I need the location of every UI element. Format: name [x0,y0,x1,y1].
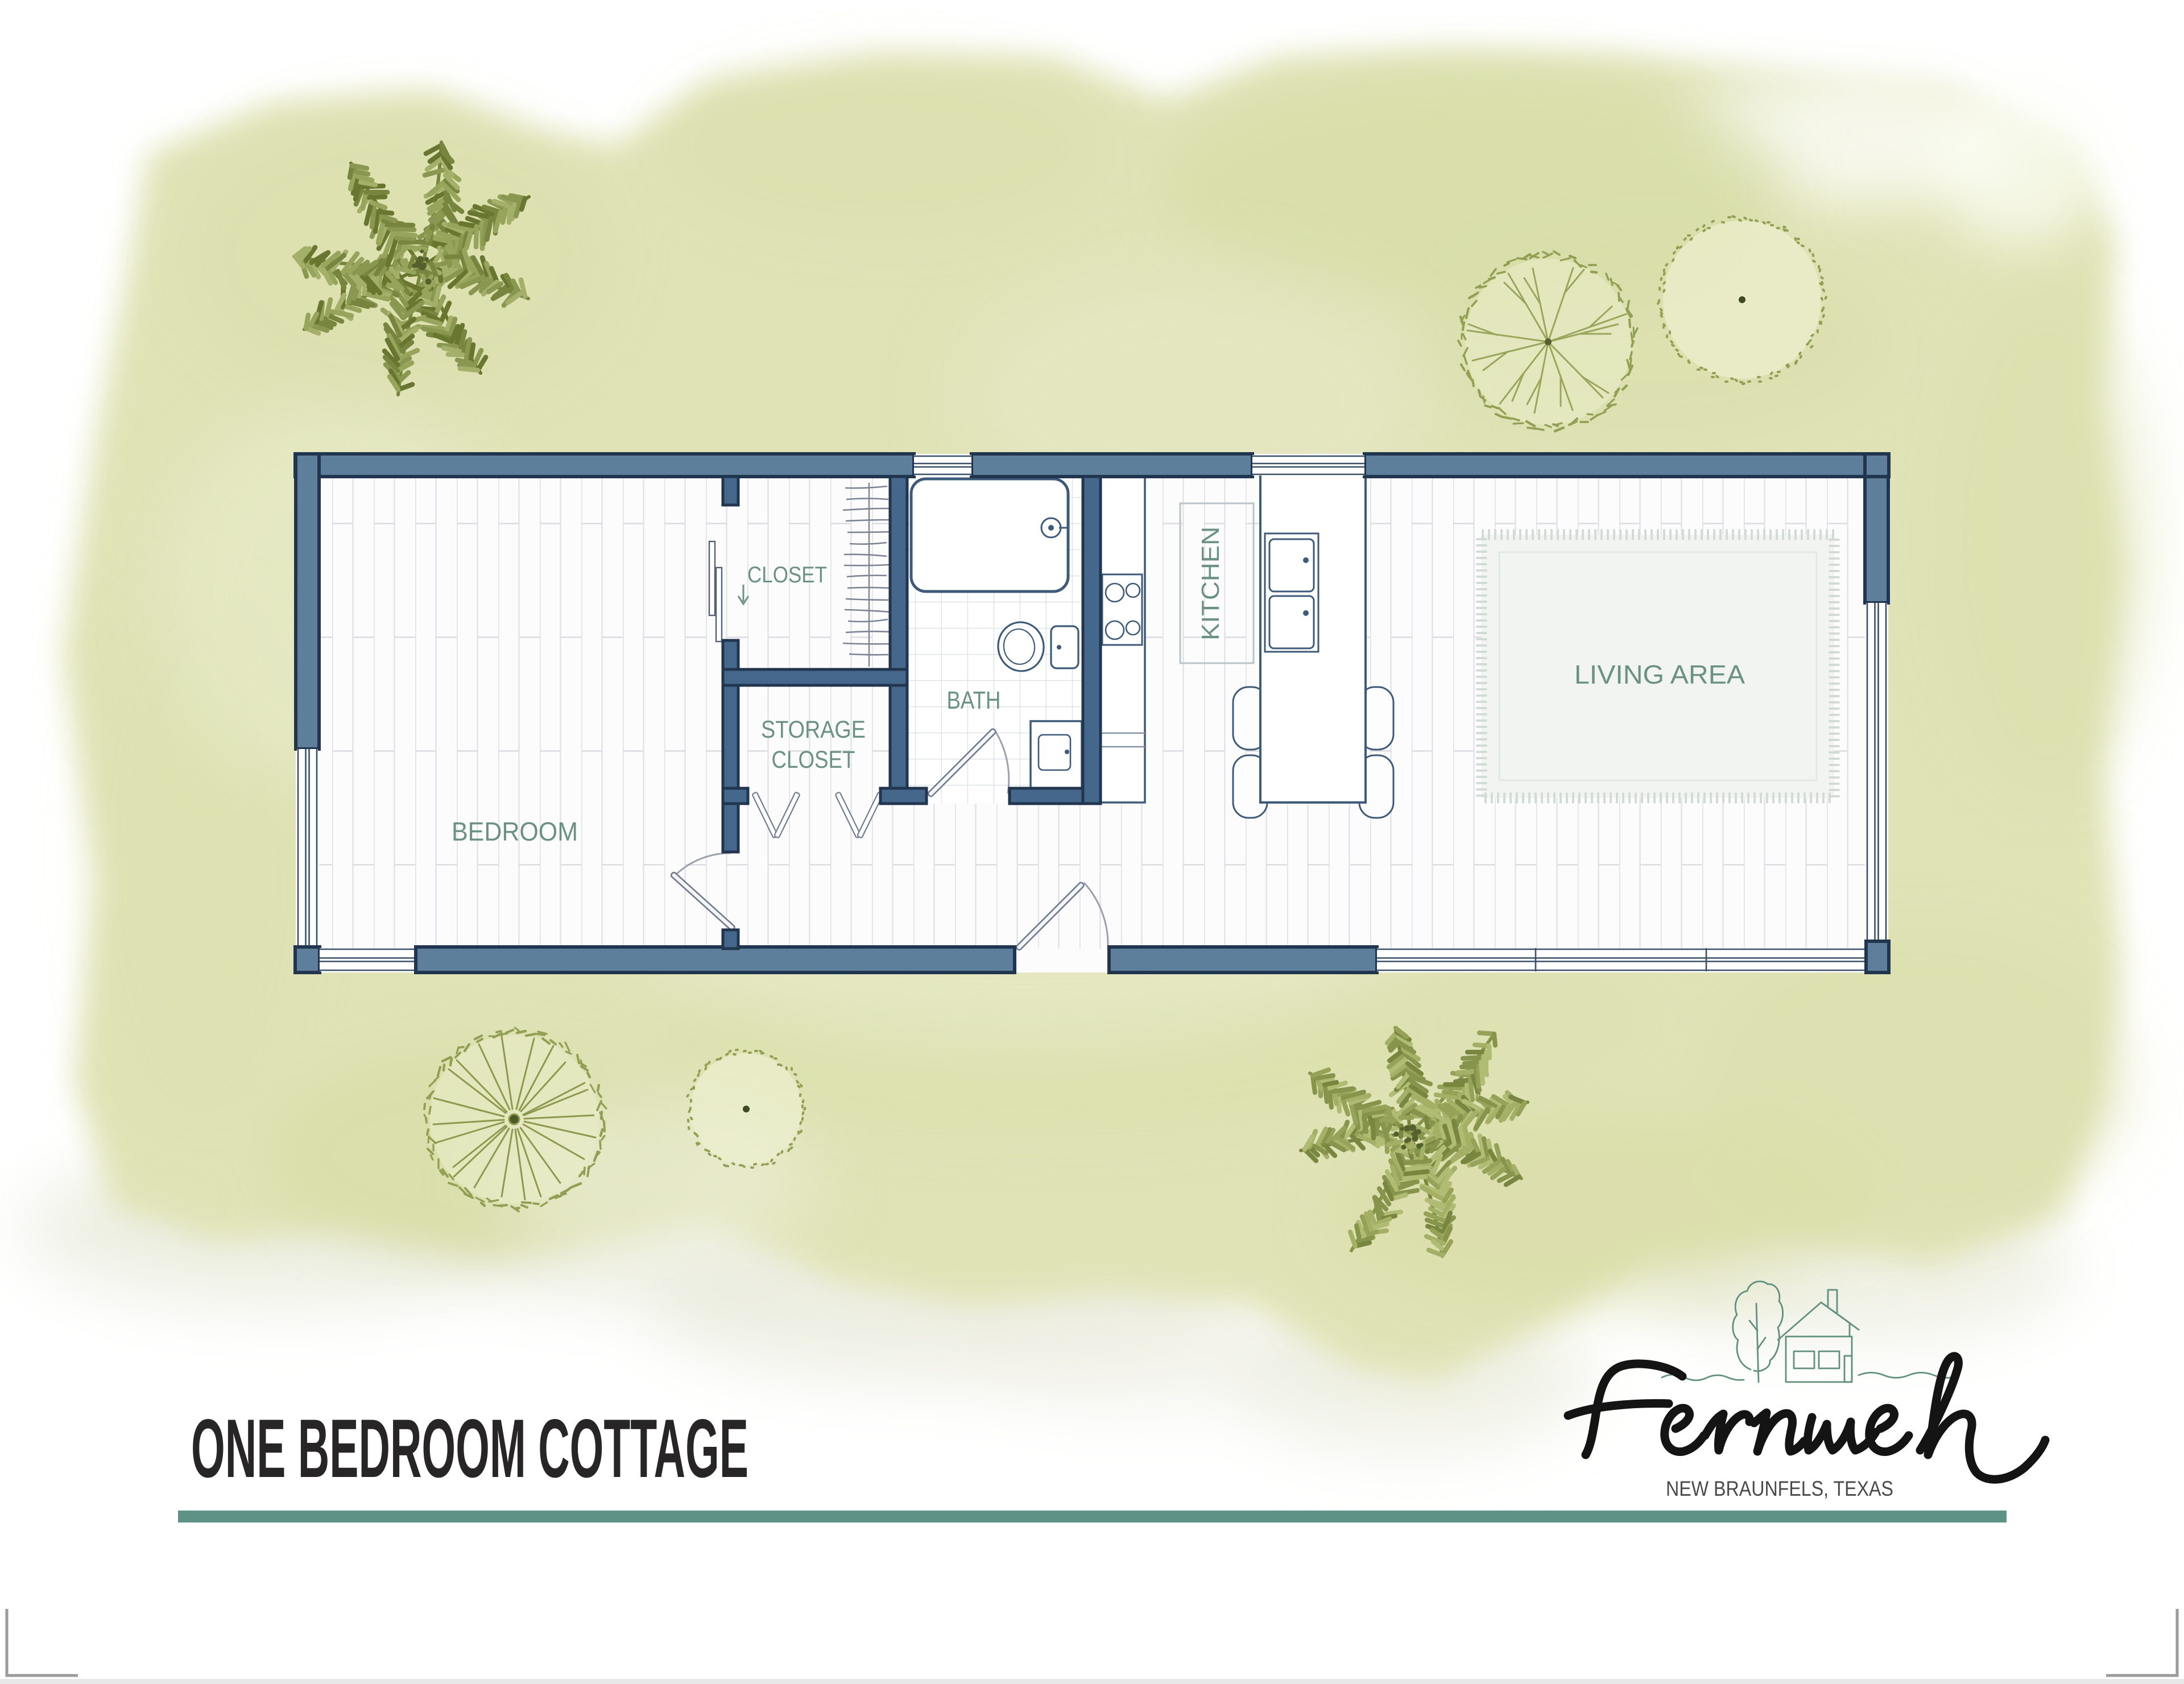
svg-text:BATH: BATH [947,686,1001,714]
svg-text:CLOSET: CLOSET [772,746,855,773]
svg-text:ONE BEDROOM COTTAGE: ONE BEDROOM COTTAGE [191,1402,748,1495]
svg-text:KITCHEN: KITCHEN [1197,527,1225,640]
svg-text:NEW BRAUNFELS, TEXAS: NEW BRAUNFELS, TEXAS [1666,1477,1893,1500]
svg-text:LIVING AREA: LIVING AREA [1574,660,1745,689]
svg-text:BEDROOM: BEDROOM [452,817,578,846]
svg-text:STORAGE: STORAGE [761,716,866,743]
svg-text:CLOSET: CLOSET [747,562,827,587]
